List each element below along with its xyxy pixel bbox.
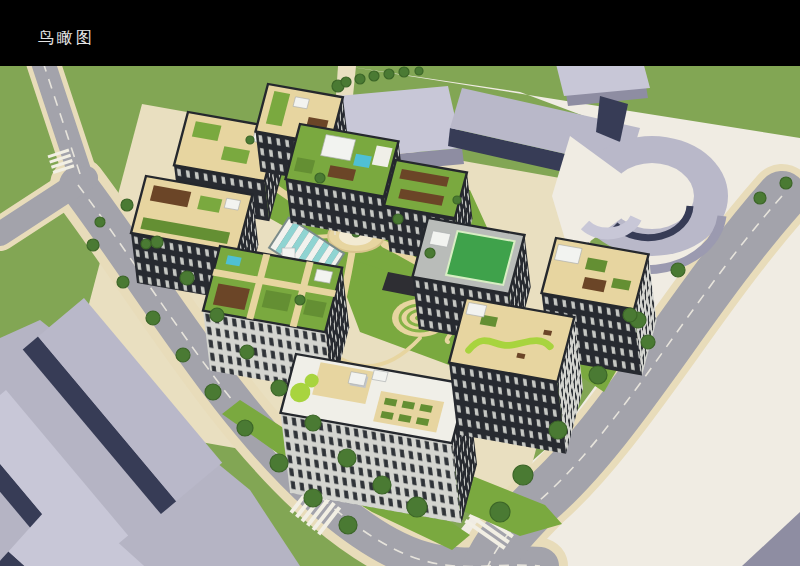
letterbox-band	[0, 0, 800, 66]
rendering-board: 鸟瞰图	[0, 0, 800, 566]
campus-building	[286, 124, 404, 241]
rooftop-soccer-field	[446, 231, 515, 285]
page-title: 鸟瞰图	[38, 28, 95, 49]
aerial-rendering	[0, 0, 800, 566]
